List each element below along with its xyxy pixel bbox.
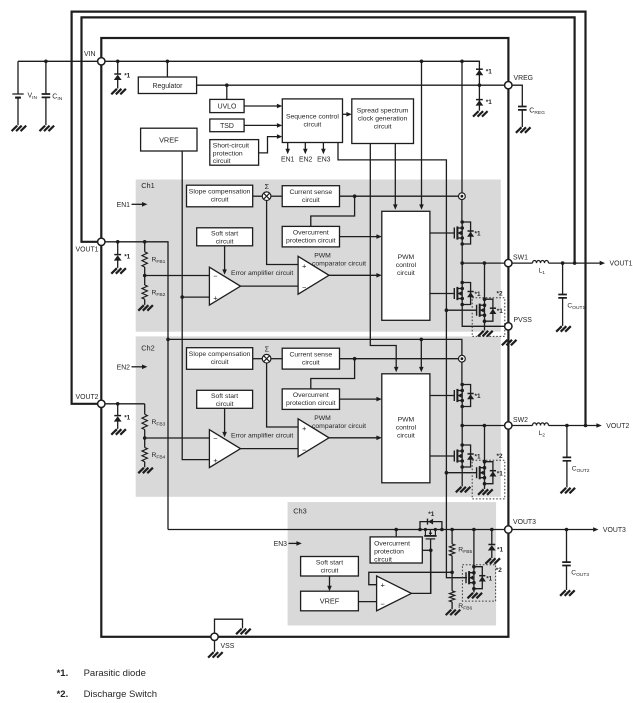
svg-text:TSD: TSD xyxy=(220,123,234,130)
svg-text:PVSS: PVSS xyxy=(514,317,533,324)
svg-text:EN3: EN3 xyxy=(317,157,331,164)
svg-text:circuit: circuit xyxy=(321,567,339,574)
svg-text:−: − xyxy=(302,283,307,292)
svg-text:circuit: circuit xyxy=(213,158,231,165)
svg-text:*1: *1 xyxy=(497,547,503,554)
svg-text:control: control xyxy=(396,262,417,269)
svg-text:*1: *1 xyxy=(124,253,130,260)
svg-text:−: − xyxy=(213,434,218,443)
svg-text:UVLO: UVLO xyxy=(218,104,237,111)
svg-text:SW2: SW2 xyxy=(513,417,528,424)
svg-text:protection circuit: protection circuit xyxy=(286,400,336,407)
svg-text:−: − xyxy=(302,446,307,455)
svg-text:*1: *1 xyxy=(124,73,130,80)
svg-text:Error amplifier circuit: Error amplifier circuit xyxy=(231,433,293,440)
svg-text:*2.: *2. xyxy=(57,689,69,700)
svg-text:*1: *1 xyxy=(497,470,503,477)
svg-text:PWM: PWM xyxy=(398,417,415,424)
svg-text:Slope compensation: Slope compensation xyxy=(189,189,251,196)
svg-text:comparator circuit: comparator circuit xyxy=(312,423,366,430)
svg-text:circuit: circuit xyxy=(216,401,234,408)
svg-text:Soft start: Soft start xyxy=(211,231,238,238)
svg-text:Soft start: Soft start xyxy=(211,393,238,400)
svg-text:PWM: PWM xyxy=(398,254,415,261)
svg-text:Spread spectrum: Spread spectrum xyxy=(357,108,409,115)
svg-text:Σ: Σ xyxy=(265,182,270,191)
svg-text:VOUT3: VOUT3 xyxy=(603,527,626,534)
svg-text:circuit: circuit xyxy=(304,122,322,129)
svg-text:EN3: EN3 xyxy=(274,541,288,548)
svg-text:PWM: PWM xyxy=(314,252,331,259)
svg-text:VIN: VIN xyxy=(84,51,96,58)
svg-text:Ch1: Ch1 xyxy=(141,181,155,190)
svg-text:Ch3: Ch3 xyxy=(293,507,307,516)
svg-text:−: − xyxy=(381,599,386,608)
svg-text:Overcurrent: Overcurrent xyxy=(293,230,329,237)
svg-text:*1: *1 xyxy=(475,454,481,461)
svg-text:*1: *1 xyxy=(428,511,434,518)
svg-text:EN2: EN2 xyxy=(299,157,313,164)
svg-text:VREG: VREG xyxy=(514,75,534,82)
svg-text:*1: *1 xyxy=(486,99,492,106)
svg-text:Soft start: Soft start xyxy=(316,559,343,566)
svg-text:Short-circuit: Short-circuit xyxy=(213,143,249,150)
svg-text:Current sense: Current sense xyxy=(289,351,332,358)
svg-text:Slope compensation: Slope compensation xyxy=(189,351,251,358)
svg-text:VREF: VREF xyxy=(320,597,340,606)
svg-text:VSS: VSS xyxy=(221,643,235,650)
svg-text:*2: *2 xyxy=(497,453,503,460)
svg-text:VOUT2: VOUT2 xyxy=(76,394,99,401)
svg-text:circuit: circuit xyxy=(302,197,320,204)
svg-text:clock generation: clock generation xyxy=(358,116,408,123)
svg-text:Overcurrent: Overcurrent xyxy=(374,540,410,547)
svg-text:+: + xyxy=(381,581,386,590)
svg-text:Ch2: Ch2 xyxy=(141,344,155,353)
svg-text:Overcurrent: Overcurrent xyxy=(293,392,329,399)
svg-text:Parasitic diode: Parasitic diode xyxy=(84,668,146,679)
svg-text:PWM: PWM xyxy=(314,415,331,422)
svg-text:Current sense: Current sense xyxy=(289,189,332,196)
svg-text:EN1: EN1 xyxy=(281,157,295,164)
svg-text:circuit: circuit xyxy=(302,359,320,366)
svg-text:*1.: *1. xyxy=(57,668,69,679)
svg-text:circuit: circuit xyxy=(211,197,229,204)
svg-text:SW1: SW1 xyxy=(513,255,528,262)
svg-text:*1: *1 xyxy=(497,308,503,315)
svg-text:EN2: EN2 xyxy=(117,365,131,372)
svg-text:*1: *1 xyxy=(475,393,481,400)
svg-text:Discharge Switch: Discharge Switch xyxy=(84,689,157,700)
svg-text:control: control xyxy=(396,425,417,432)
svg-text:VREF: VREF xyxy=(159,136,179,145)
svg-text:circuit: circuit xyxy=(397,270,415,277)
svg-text:VOUT1: VOUT1 xyxy=(76,247,99,254)
svg-text:circuit: circuit xyxy=(211,359,229,366)
svg-text:protection circuit: protection circuit xyxy=(286,238,336,245)
svg-text:+: + xyxy=(213,456,218,465)
svg-text:protection: protection xyxy=(374,548,404,555)
svg-text:protection: protection xyxy=(213,150,243,157)
svg-text:VOUT2: VOUT2 xyxy=(606,423,629,430)
svg-text:circuit: circuit xyxy=(374,124,392,131)
svg-text:Σ: Σ xyxy=(265,345,270,354)
svg-text:+: + xyxy=(302,424,307,433)
svg-text:circuit: circuit xyxy=(216,239,234,246)
svg-text:EN1: EN1 xyxy=(117,202,131,209)
svg-text:*1: *1 xyxy=(486,69,492,76)
svg-text:*1: *1 xyxy=(124,414,130,421)
svg-text:*1: *1 xyxy=(475,231,481,238)
svg-text:+: + xyxy=(213,293,218,302)
svg-text:comparator circuit: comparator circuit xyxy=(312,260,366,267)
svg-text:Regulator: Regulator xyxy=(153,83,184,90)
svg-text:circuit: circuit xyxy=(397,433,415,440)
svg-text:VOUT1: VOUT1 xyxy=(610,261,633,268)
svg-text:Error amplifier circuit: Error amplifier circuit xyxy=(231,270,293,277)
svg-text:*1: *1 xyxy=(486,575,492,582)
svg-text:*1: *1 xyxy=(475,291,481,298)
svg-text:VOUT3: VOUT3 xyxy=(513,519,536,526)
svg-text:−: − xyxy=(213,271,218,280)
svg-text:*2: *2 xyxy=(496,567,502,574)
svg-text:circuit: circuit xyxy=(374,556,392,563)
svg-text:*2: *2 xyxy=(497,290,503,297)
svg-text:Sequence control: Sequence control xyxy=(286,114,339,121)
svg-text:+: + xyxy=(302,261,307,270)
